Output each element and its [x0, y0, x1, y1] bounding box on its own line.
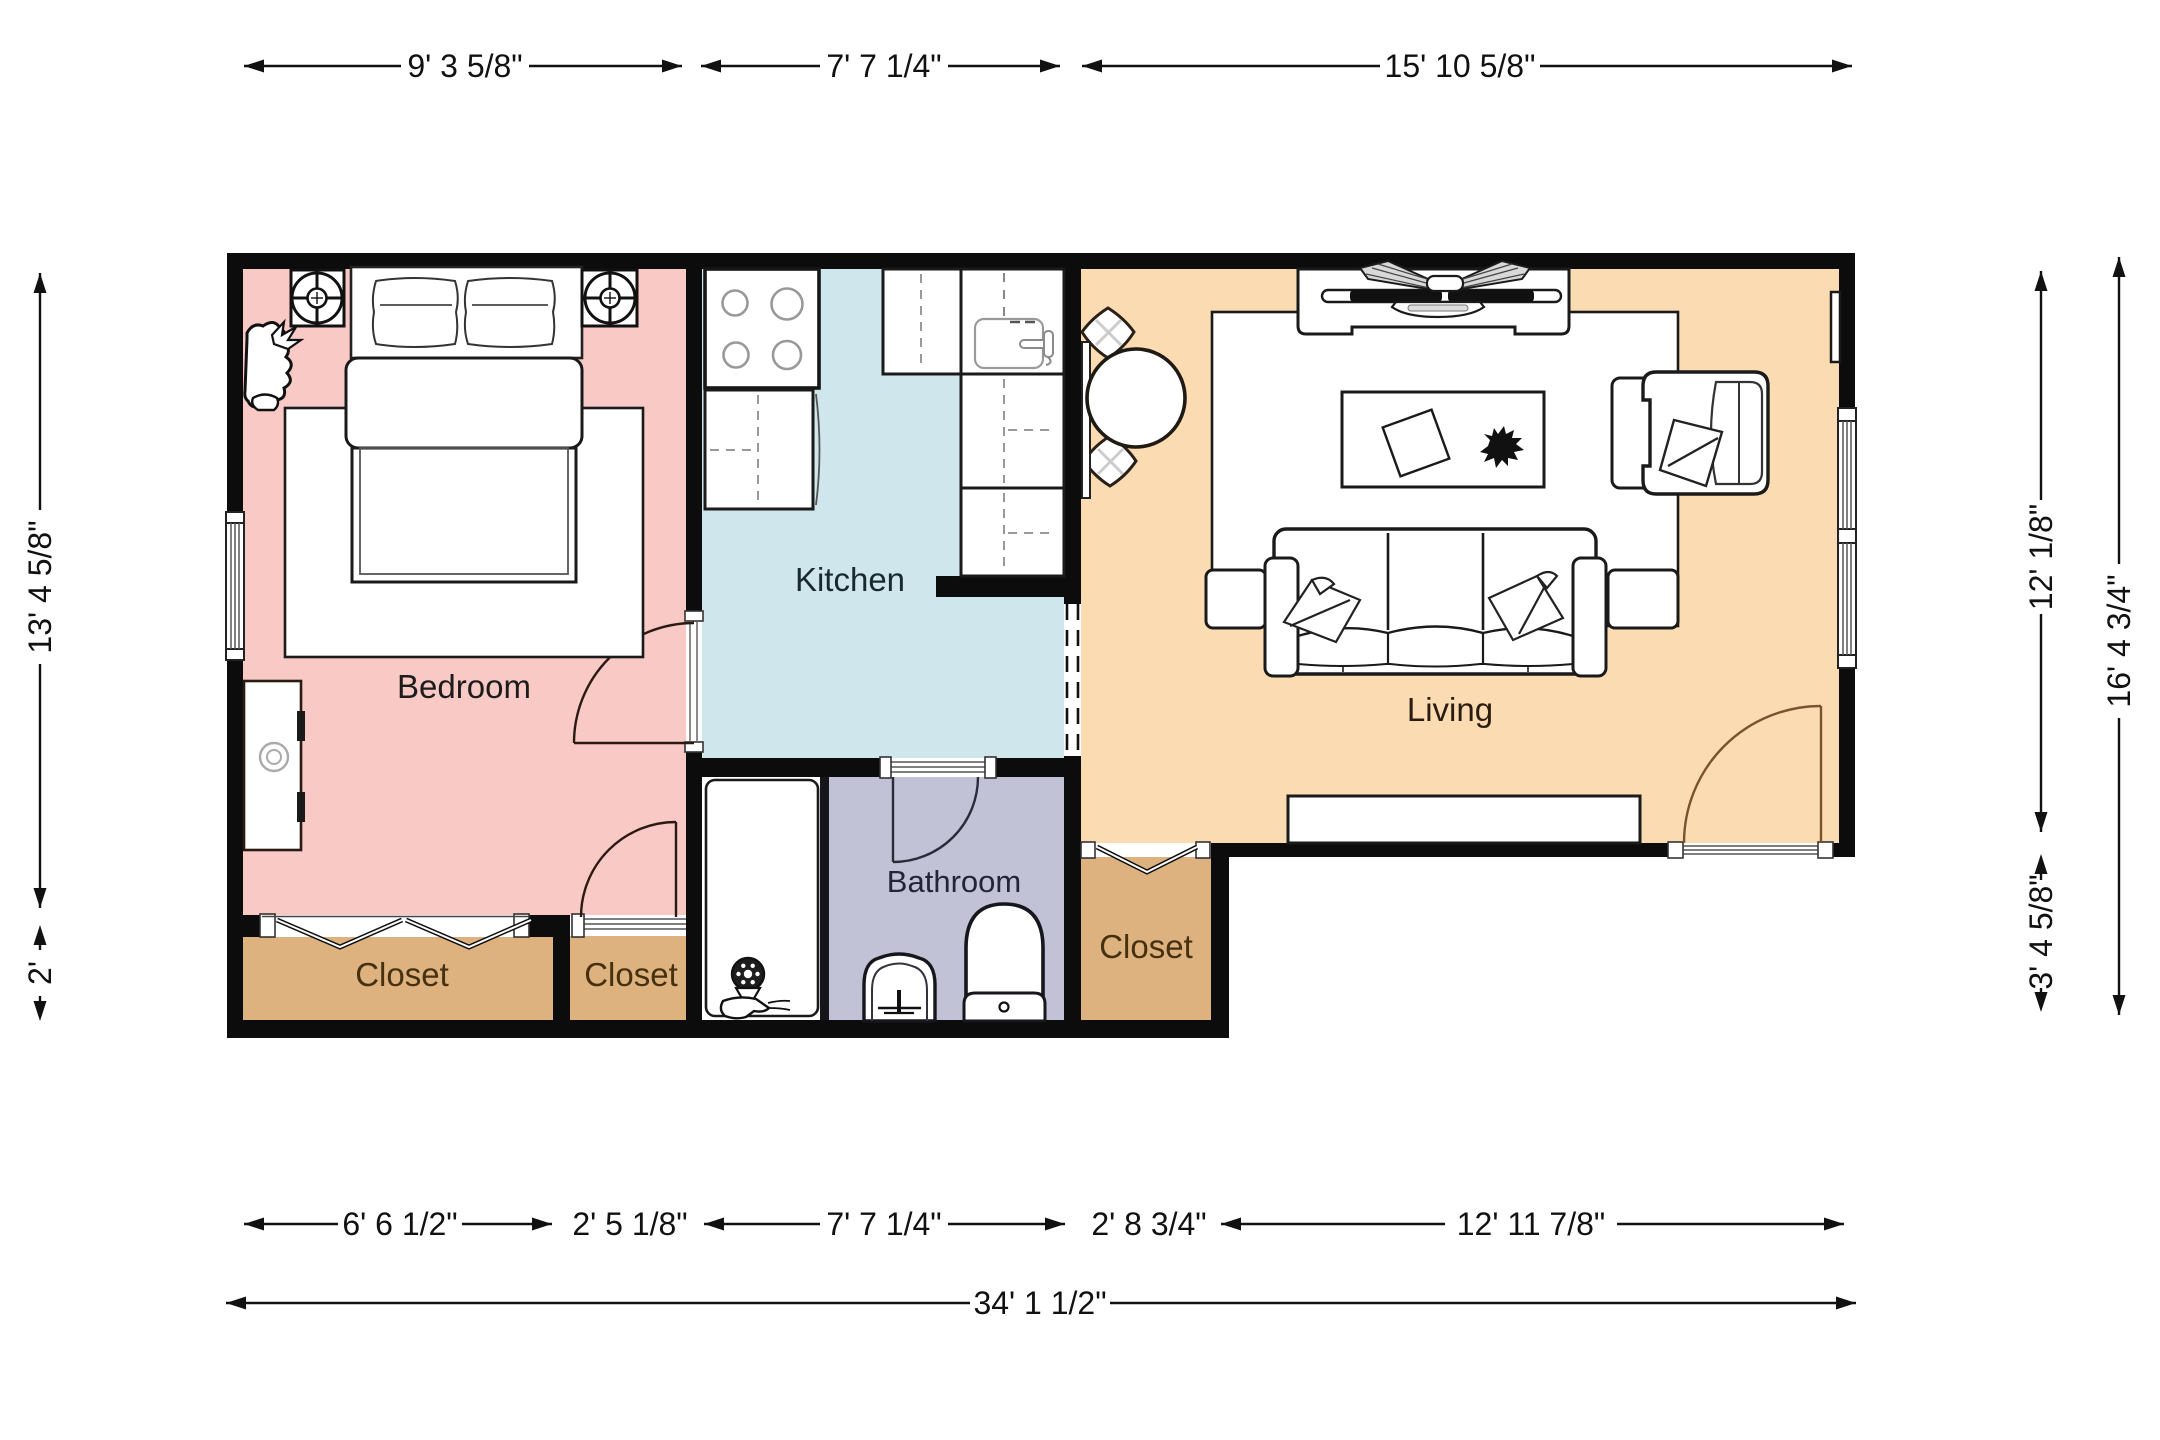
svg-text:15' 10 5/8": 15' 10 5/8": [1385, 48, 1536, 84]
svg-text:13' 4 5/8": 13' 4 5/8": [22, 520, 58, 653]
svg-text:Kitchen: Kitchen: [795, 561, 905, 598]
svg-text:7' 7 1/4": 7' 7 1/4": [826, 48, 941, 84]
svg-text:Bedroom: Bedroom: [397, 668, 531, 705]
svg-text:12' 1/8": 12' 1/8": [2023, 504, 2059, 610]
svg-text:7' 7 1/4": 7' 7 1/4": [826, 1206, 941, 1242]
svg-text:2' 5 1/8": 2' 5 1/8": [572, 1206, 687, 1242]
svg-text:2': 2': [22, 961, 58, 985]
svg-text:Closet: Closet: [1099, 928, 1193, 965]
svg-text:3' 4 5/8": 3' 4 5/8": [2023, 874, 2059, 989]
svg-text:34' 1 1/2": 34' 1 1/2": [973, 1285, 1106, 1321]
svg-text:Closet: Closet: [355, 956, 449, 993]
svg-text:12' 11 7/8": 12' 11 7/8": [1457, 1206, 1606, 1242]
svg-text:6' 6 1/2": 6' 6 1/2": [342, 1206, 457, 1242]
svg-text:Living: Living: [1407, 691, 1493, 728]
svg-text:Closet: Closet: [584, 956, 678, 993]
svg-text:9' 3 5/8": 9' 3 5/8": [407, 48, 522, 84]
svg-text:2' 8 3/4": 2' 8 3/4": [1091, 1206, 1206, 1242]
svg-text:Bathroom: Bathroom: [887, 864, 1021, 899]
svg-text:16' 4 3/4": 16' 4 3/4": [2101, 574, 2137, 707]
